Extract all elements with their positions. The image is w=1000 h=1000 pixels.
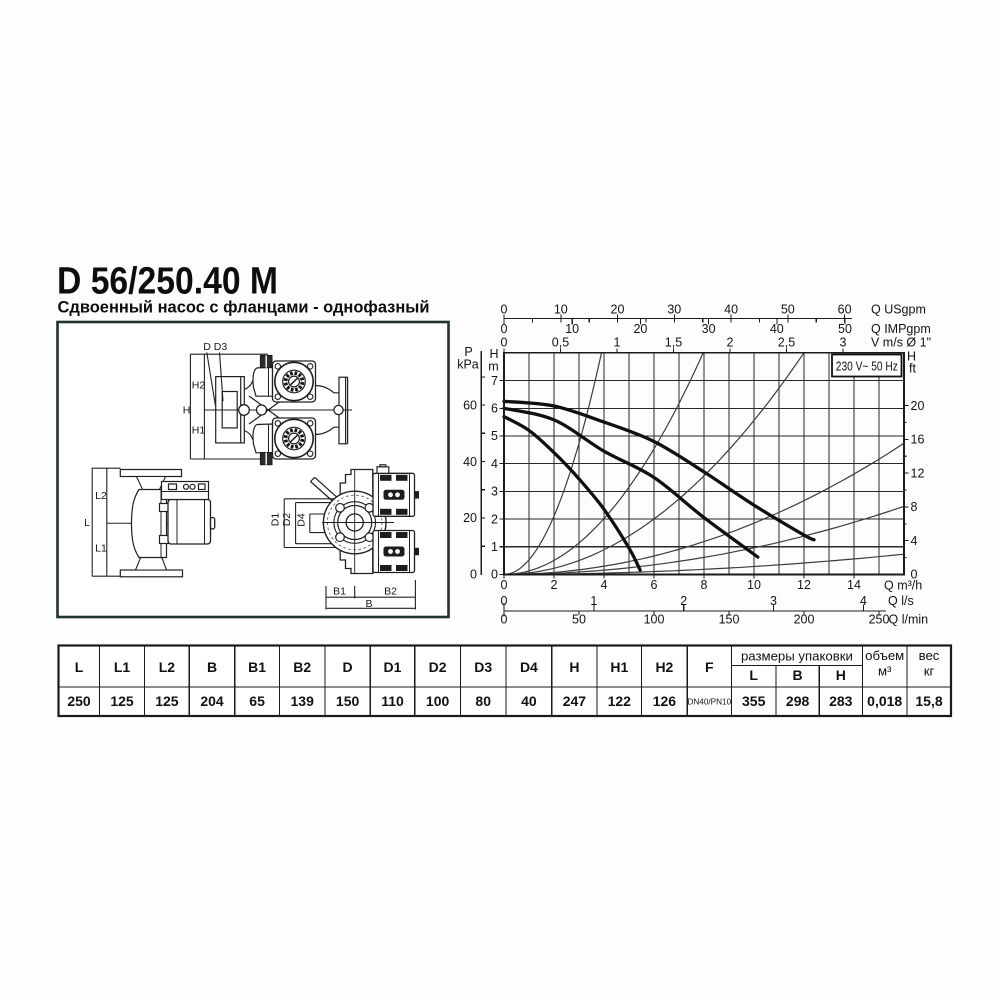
svg-text:Q IMPgpm: Q IMPgpm bbox=[871, 322, 931, 336]
svg-text:L1: L1 bbox=[95, 543, 107, 555]
svg-text:283: 283 bbox=[829, 693, 853, 709]
svg-text:16: 16 bbox=[911, 433, 925, 447]
svg-text:3: 3 bbox=[840, 336, 847, 350]
svg-text:247: 247 bbox=[563, 693, 587, 709]
svg-text:L2: L2 bbox=[95, 490, 107, 502]
svg-text:Q l/min: Q l/min bbox=[889, 613, 929, 627]
svg-text:D 56/250.40 M: D 56/250.40 M bbox=[57, 261, 278, 303]
svg-text:ft: ft bbox=[909, 362, 916, 376]
svg-text:50: 50 bbox=[838, 322, 852, 336]
svg-text:125: 125 bbox=[155, 693, 179, 709]
svg-text:Q l/s: Q l/s bbox=[888, 594, 914, 608]
svg-text:B1: B1 bbox=[248, 659, 266, 675]
svg-text:20: 20 bbox=[611, 303, 625, 317]
svg-text:L: L bbox=[749, 667, 758, 683]
svg-text:1: 1 bbox=[590, 594, 597, 608]
svg-text:4: 4 bbox=[860, 594, 867, 608]
svg-text:60: 60 bbox=[463, 398, 477, 412]
svg-text:2: 2 bbox=[491, 512, 498, 526]
svg-text:L: L bbox=[84, 517, 90, 529]
svg-text:вес: вес bbox=[919, 648, 940, 663]
svg-text:250: 250 bbox=[67, 693, 91, 709]
svg-text:0: 0 bbox=[491, 568, 498, 582]
svg-text:0,018: 0,018 bbox=[867, 693, 902, 709]
svg-text:D1: D1 bbox=[384, 659, 402, 675]
svg-text:1,5: 1,5 bbox=[665, 336, 682, 350]
svg-text:F: F bbox=[705, 659, 714, 675]
svg-text:60: 60 bbox=[838, 303, 852, 317]
svg-text:20: 20 bbox=[633, 322, 647, 336]
svg-text:122: 122 bbox=[608, 693, 632, 709]
svg-text:D2: D2 bbox=[429, 659, 447, 675]
svg-text:4: 4 bbox=[911, 534, 918, 548]
svg-text:0: 0 bbox=[501, 303, 508, 317]
svg-text:L1: L1 bbox=[114, 659, 131, 675]
svg-text:40: 40 bbox=[770, 322, 784, 336]
svg-text:L: L bbox=[75, 659, 84, 675]
svg-text:H: H bbox=[569, 659, 579, 675]
svg-text:H1: H1 bbox=[192, 425, 206, 437]
svg-text:10: 10 bbox=[565, 322, 579, 336]
svg-text:0: 0 bbox=[501, 336, 508, 350]
svg-text:V m/s Ø 1": V m/s Ø 1" bbox=[871, 336, 931, 350]
svg-text:kPa: kPa bbox=[457, 358, 479, 372]
svg-text:50: 50 bbox=[781, 303, 795, 317]
svg-text:L2: L2 bbox=[159, 659, 176, 675]
svg-text:8: 8 bbox=[911, 500, 918, 514]
svg-text:0: 0 bbox=[501, 578, 508, 592]
svg-text:D: D bbox=[343, 659, 353, 675]
svg-text:D4: D4 bbox=[520, 659, 538, 675]
svg-text:D3: D3 bbox=[214, 341, 228, 353]
svg-text:65: 65 bbox=[249, 693, 265, 709]
svg-text:100: 100 bbox=[426, 693, 450, 709]
svg-text:0: 0 bbox=[501, 613, 508, 627]
svg-text:B: B bbox=[365, 598, 372, 610]
svg-text:150: 150 bbox=[336, 693, 360, 709]
svg-text:125: 125 bbox=[110, 693, 134, 709]
svg-text:H: H bbox=[836, 667, 846, 683]
svg-text:20: 20 bbox=[463, 511, 477, 525]
svg-text:2: 2 bbox=[680, 594, 687, 608]
svg-text:20: 20 bbox=[911, 399, 925, 413]
svg-text:кг: кг bbox=[924, 664, 935, 679]
svg-text:H2: H2 bbox=[655, 659, 673, 675]
svg-text:298: 298 bbox=[786, 693, 810, 709]
svg-text:1: 1 bbox=[614, 336, 621, 350]
svg-text:126: 126 bbox=[653, 693, 677, 709]
svg-text:12: 12 bbox=[911, 466, 925, 480]
svg-text:6: 6 bbox=[651, 578, 658, 592]
svg-text:139: 139 bbox=[291, 693, 315, 709]
svg-text:4: 4 bbox=[601, 578, 608, 592]
svg-text:3: 3 bbox=[770, 594, 777, 608]
svg-text:м³: м³ bbox=[878, 664, 892, 679]
svg-text:355: 355 bbox=[742, 693, 766, 709]
svg-text:D4: D4 bbox=[295, 513, 307, 527]
svg-text:0: 0 bbox=[501, 322, 508, 336]
svg-text:H1: H1 bbox=[610, 659, 628, 675]
svg-text:Сдвоенный насос с фланцами - о: Сдвоенный насос с фланцами - однофазный bbox=[58, 298, 430, 317]
svg-text:100: 100 bbox=[644, 613, 665, 627]
svg-text:размеры упаковки: размеры упаковки bbox=[741, 649, 853, 664]
svg-text:10: 10 bbox=[747, 578, 761, 592]
svg-text:15,8: 15,8 bbox=[915, 693, 942, 709]
svg-text:250: 250 bbox=[869, 613, 890, 627]
svg-text:8: 8 bbox=[701, 578, 708, 592]
svg-text:2,5: 2,5 bbox=[778, 336, 795, 350]
svg-text:H: H bbox=[183, 405, 191, 417]
svg-text:10: 10 bbox=[554, 303, 568, 317]
svg-text:3: 3 bbox=[491, 485, 498, 499]
svg-text:B2: B2 bbox=[384, 586, 397, 598]
svg-text:2: 2 bbox=[551, 578, 558, 592]
svg-text:200: 200 bbox=[794, 613, 815, 627]
svg-text:110: 110 bbox=[381, 693, 404, 709]
svg-text:12: 12 bbox=[797, 578, 811, 592]
svg-text:m: m bbox=[488, 360, 498, 374]
svg-text:2: 2 bbox=[727, 336, 734, 350]
svg-text:50: 50 bbox=[572, 613, 586, 627]
svg-text:4: 4 bbox=[491, 457, 498, 471]
svg-text:14: 14 bbox=[847, 578, 861, 592]
svg-text:150: 150 bbox=[719, 613, 740, 627]
svg-text:0: 0 bbox=[501, 594, 508, 608]
svg-text:B2: B2 bbox=[293, 659, 311, 675]
svg-text:40: 40 bbox=[521, 693, 537, 709]
svg-text:D: D bbox=[203, 341, 211, 353]
svg-text:30: 30 bbox=[667, 303, 681, 317]
svg-text:DN40/PN10: DN40/PN10 bbox=[687, 698, 731, 707]
svg-text:6: 6 bbox=[491, 402, 498, 416]
svg-text:D3: D3 bbox=[474, 659, 492, 675]
svg-text:40: 40 bbox=[463, 455, 477, 469]
svg-text:0: 0 bbox=[470, 568, 477, 582]
svg-text:230 V~ 50 Hz: 230 V~ 50 Hz bbox=[836, 359, 898, 374]
svg-text:D1: D1 bbox=[270, 513, 282, 527]
svg-text:B: B bbox=[207, 659, 217, 675]
svg-text:Q USgpm: Q USgpm bbox=[871, 303, 926, 317]
svg-text:30: 30 bbox=[702, 322, 716, 336]
svg-text:H2: H2 bbox=[192, 380, 206, 392]
svg-text:40: 40 bbox=[724, 303, 738, 317]
svg-text:80: 80 bbox=[475, 693, 491, 709]
svg-text:объем: объем bbox=[865, 648, 904, 663]
svg-text:5: 5 bbox=[491, 429, 498, 443]
svg-text:Q m³/h: Q m³/h bbox=[884, 579, 922, 593]
svg-text:7: 7 bbox=[491, 374, 498, 388]
svg-text:B: B bbox=[793, 667, 803, 683]
svg-text:1: 1 bbox=[491, 540, 498, 554]
svg-text:0,5: 0,5 bbox=[552, 336, 569, 350]
svg-text:204: 204 bbox=[200, 693, 224, 709]
svg-text:D2: D2 bbox=[281, 513, 293, 527]
svg-text:B1: B1 bbox=[333, 586, 346, 598]
